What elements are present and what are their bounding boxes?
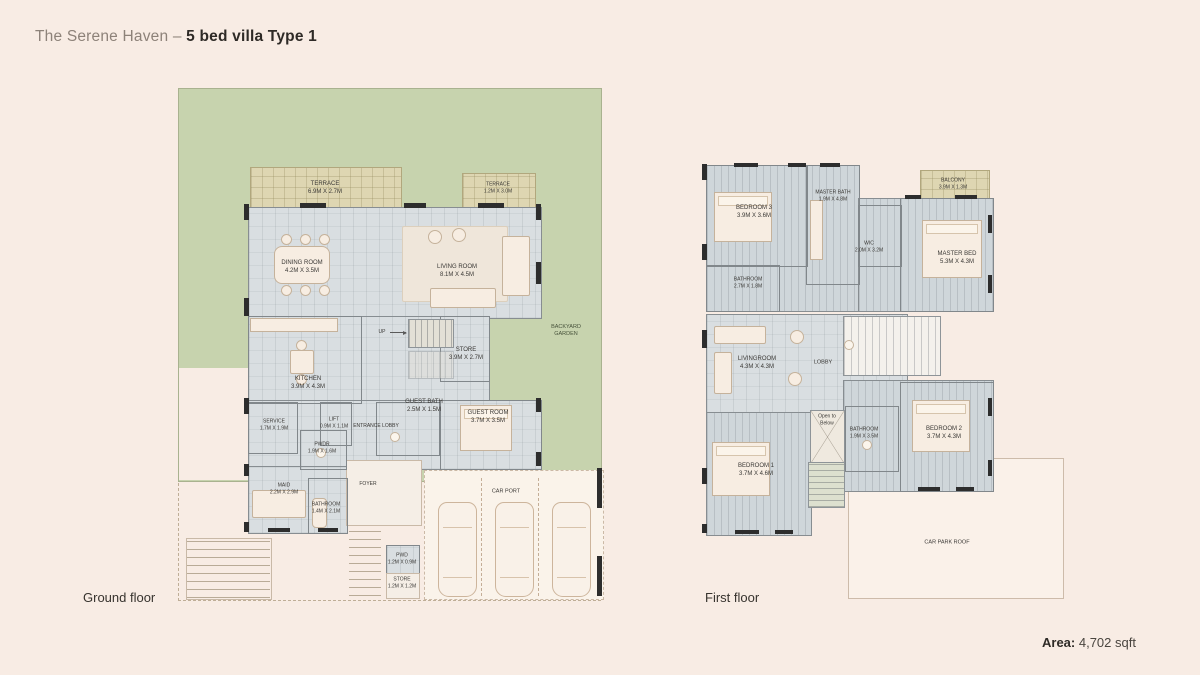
dining-chair [281, 285, 292, 296]
wall-segment [702, 164, 707, 180]
wall-segment [702, 330, 707, 348]
wall-segment [788, 163, 806, 167]
dining-chair [300, 285, 311, 296]
label-up: UP [379, 329, 386, 336]
label-open-to-below: Open toBelow [818, 414, 836, 427]
kitchen-table [290, 350, 314, 374]
wall-segment [905, 195, 921, 199]
room-label-master-bath: MASTER BATH1.9M X 4.8M [815, 190, 850, 203]
wall-segment [478, 203, 504, 208]
first-floor-caption: First floor [705, 590, 759, 605]
room-label-livingroom: LIVINGROOM4.3M X 4.3M [738, 356, 776, 372]
wall-segment [244, 464, 249, 476]
label-backyard-garden: BACKYARDGARDEN [551, 324, 581, 338]
armchair [790, 330, 804, 344]
room-label-bathroom3: BATHROOM2.7M X 1.8M [734, 277, 763, 290]
wall-segment [244, 204, 249, 220]
ground-hardscape-patch [179, 368, 249, 480]
wall-segment [735, 530, 759, 534]
room-label-balcony: BALCONY3.9M X 1.3M [939, 178, 967, 191]
wall-segment [988, 398, 992, 416]
wall-segment [988, 275, 992, 293]
wall-segment [988, 215, 992, 233]
wall-segment [597, 556, 602, 596]
wall-segment [702, 244, 707, 260]
ground-stairs-up [408, 319, 454, 348]
room-label-dining: DINING ROOM4.2M X 3.5M [281, 260, 322, 276]
wall-segment [702, 524, 707, 533]
kitchen-chair [296, 340, 307, 351]
up-arrow [390, 332, 406, 333]
dining-chair [319, 285, 330, 296]
room-label-terrace-2: TERRACE1.2M X 3.0M [484, 182, 512, 195]
armchair [452, 228, 466, 242]
wall-segment [956, 487, 974, 491]
room-label-master-bed: MASTER BED5.3M X 4.3M [937, 251, 976, 267]
room-label-bathroom2: BATHROOM1.9M X 3.5M [850, 427, 879, 440]
page-title: The Serene Haven – 5 bed villa Type 1 [35, 28, 317, 46]
title-prefix: The Serene Haven – [35, 28, 186, 45]
wall-segment [702, 468, 707, 484]
label-lobby: LOBBY [814, 359, 832, 366]
toilet [390, 432, 400, 442]
ground-foyer [346, 460, 422, 526]
wall-segment [536, 262, 541, 284]
room-label-maid: MAID2.2M X 2.9M [270, 483, 298, 496]
room-label-bathroom-ground: BATHROOM1.4M X 2.1M [312, 502, 341, 515]
room-label-bedroom3: BEDROOM 33.9M X 3.6M [736, 205, 772, 221]
room-label-living: LIVING ROOM8.1M X 4.5M [437, 264, 477, 280]
label-car-park-roof: CAR PARK ROOF [924, 539, 969, 546]
room-label-bedroom2: BEDROOM 23.7M X 4.3M [926, 426, 962, 442]
label-car-port: CAR PORT [492, 488, 520, 495]
room-label-pwd: PWD1.2M X 0.9M [388, 553, 416, 566]
wall-segment [918, 487, 940, 491]
wall-segment [404, 203, 426, 208]
wall-segment [988, 460, 992, 476]
wall-segment [536, 204, 541, 220]
wall-segment [244, 522, 249, 532]
ground-stairs-lower-flight [408, 351, 454, 379]
master-bed-furniture [922, 220, 982, 278]
room-label-store-small: STORE1.2M X 1.2M [388, 577, 416, 590]
room-label-kitchen: KITCHEN3.9M X 4.3M [291, 376, 325, 392]
armchair [428, 230, 442, 244]
dining-chair [300, 234, 311, 245]
wall-segment [775, 530, 793, 534]
room-label-service: SERVICE1.7M X 1.9M [260, 419, 288, 432]
car [438, 502, 477, 597]
toilet [844, 340, 854, 350]
room-label-terrace-1: TERRACE6.9M X 2.7M [308, 181, 342, 197]
first-stairs-down [808, 462, 845, 508]
wall-segment [597, 468, 602, 508]
sofa [502, 236, 530, 296]
foyer-steps [349, 524, 381, 596]
sofa [430, 288, 496, 308]
car [552, 502, 591, 597]
first-stairwell [843, 316, 941, 376]
wall-segment [536, 452, 541, 466]
wall-segment [318, 528, 338, 532]
title-bold: 5 bed villa Type 1 [186, 28, 317, 45]
room-label-pwdr: PWDR1.9M X 1.6M [308, 442, 336, 455]
wall-segment [734, 163, 758, 167]
wall-segment [244, 298, 249, 316]
toilet [862, 440, 872, 450]
wall-segment [300, 203, 326, 208]
area-label: Area: [1042, 635, 1075, 650]
label-foyer: FOYER [359, 481, 376, 488]
wall-segment [820, 163, 840, 167]
room-label-store: STORE3.9M X 2.7M [449, 347, 483, 363]
area-total: Area: 4,702 sqft [1042, 635, 1136, 650]
armchair [788, 372, 802, 386]
wic-partition [858, 205, 902, 267]
wall-segment [536, 398, 541, 412]
ground-floor-caption: Ground floor [83, 590, 155, 605]
label-entrance-lobby: ENTRANCE LOBBY [353, 423, 399, 430]
wall-segment [955, 195, 977, 199]
bath-counter [810, 200, 823, 260]
wall-segment [244, 398, 249, 414]
room-label-guest-bath: GUEST BATH2.5M X 1.5M [405, 399, 443, 415]
car-port-divider [538, 478, 539, 596]
room-label-bedroom1: BEDROOM 13.7M X 4.6M [738, 463, 774, 479]
car-port-divider [481, 478, 482, 596]
sofa [714, 326, 766, 344]
kitchen-counter [250, 318, 338, 332]
wall-segment [268, 528, 290, 532]
room-label-lift: LIFT0.9M X 1.1M [320, 417, 348, 430]
dining-chair [281, 234, 292, 245]
dining-chair [319, 234, 330, 245]
room-label-guest-room: GUEST ROOM3.7M X 3.5M [468, 410, 509, 426]
area-value: 4,702 sqft [1075, 635, 1136, 650]
car [495, 502, 534, 597]
sofa [714, 352, 732, 394]
outdoor-steps-left-frame [186, 538, 272, 600]
room-label-wic: WIC2.0M X 3.2M [855, 241, 883, 254]
